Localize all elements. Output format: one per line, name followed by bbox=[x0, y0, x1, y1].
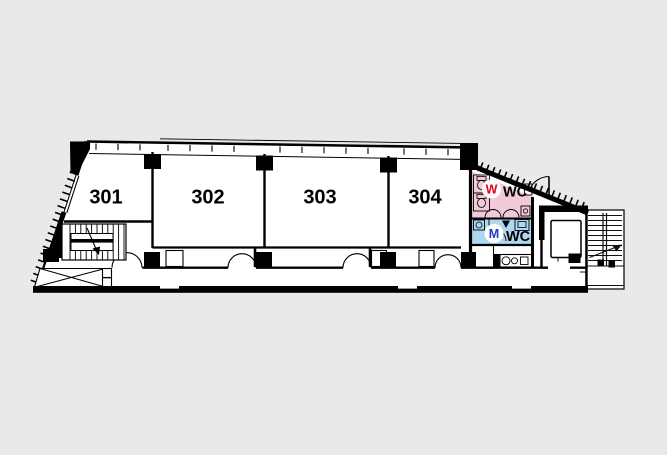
room-301-label: 301 bbox=[89, 187, 122, 209]
exterior-stair-outline bbox=[586, 210, 624, 289]
exterior-stair bbox=[586, 210, 624, 289]
column bbox=[461, 252, 476, 267]
stair-newel bbox=[598, 260, 605, 267]
exterior-wall bbox=[33, 286, 588, 293]
stair-newel bbox=[609, 261, 616, 268]
men-wc-letter: M bbox=[489, 227, 499, 241]
counter-end bbox=[495, 255, 501, 267]
void-area bbox=[35, 269, 112, 288]
elevator-top-wall bbox=[539, 206, 588, 213]
women-wc-letter: W bbox=[486, 183, 498, 197]
wall-vent bbox=[160, 286, 179, 289]
floor-plan-page: W WC M WC bbox=[0, 0, 667, 455]
room-304-label: 304 bbox=[408, 187, 442, 209]
column bbox=[144, 252, 160, 267]
restroom-men: M WC bbox=[471, 219, 532, 246]
stairwell-main bbox=[51, 224, 126, 260]
room-303-label: 303 bbox=[303, 187, 336, 209]
column bbox=[380, 252, 396, 267]
wall-vent bbox=[512, 286, 531, 289]
bottom-exterior-wall bbox=[33, 286, 588, 293]
door-jamb bbox=[103, 278, 112, 287]
room-302-label: 302 bbox=[191, 187, 224, 209]
elevator-car bbox=[551, 221, 581, 258]
wall-vent bbox=[398, 286, 417, 289]
elevator-left-wall bbox=[539, 212, 545, 240]
floor-plan-svg: W WC M WC bbox=[0, 0, 667, 455]
column bbox=[256, 252, 272, 267]
men-wc-label: WC bbox=[506, 229, 531, 245]
door-jamb bbox=[103, 269, 112, 278]
elevator-counterweight bbox=[569, 254, 581, 264]
